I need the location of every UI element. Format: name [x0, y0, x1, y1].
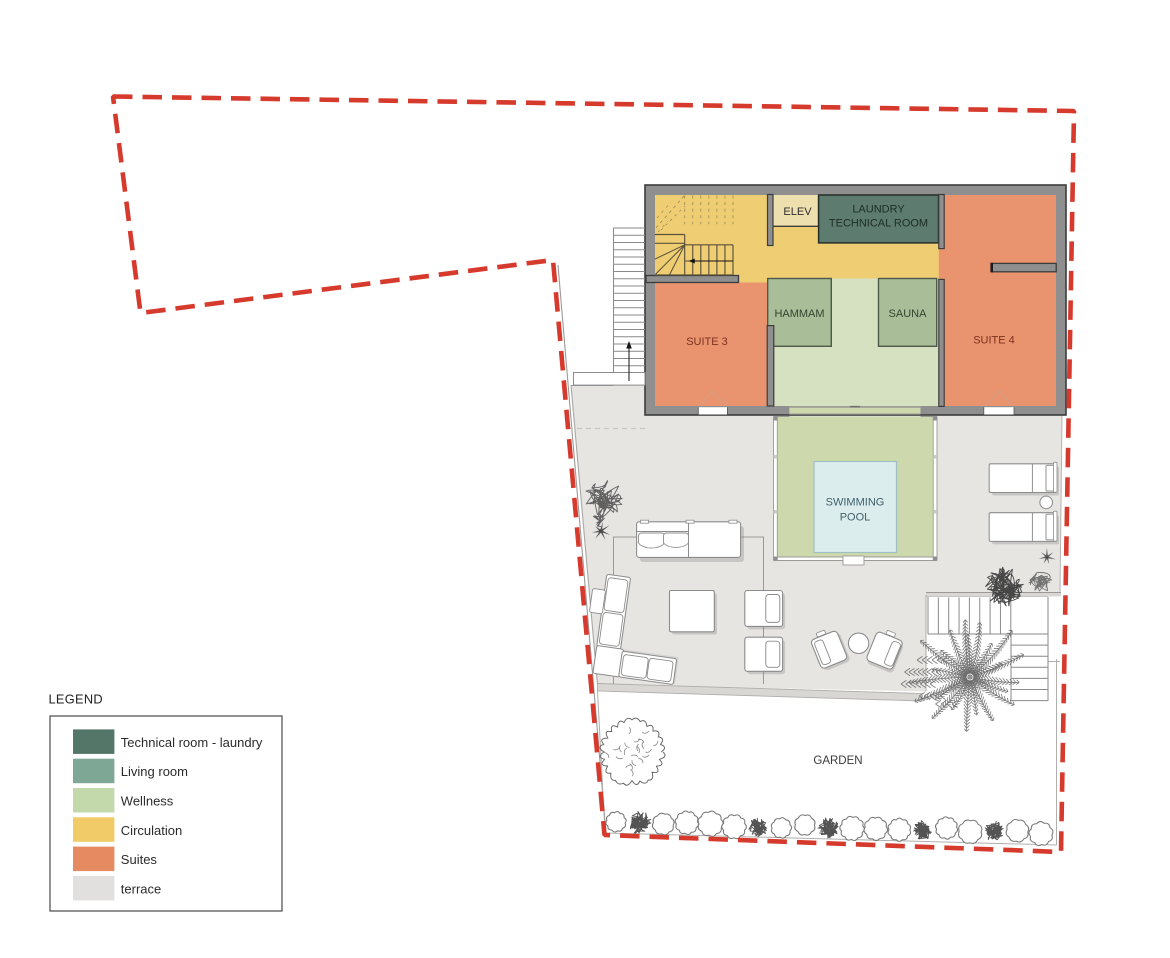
- svg-text:Suites: Suites: [121, 852, 158, 867]
- svg-text:ELEV: ELEV: [783, 206, 812, 218]
- svg-text:Technical room - laundry: Technical room - laundry: [121, 735, 263, 750]
- svg-text:TECHNICAL ROOM: TECHNICAL ROOM: [829, 218, 928, 230]
- svg-text:Living room: Living room: [121, 764, 188, 779]
- svg-text:LEGEND: LEGEND: [49, 692, 103, 707]
- svg-text:SWIMMING: SWIMMING: [826, 497, 885, 509]
- svg-text:SAUNA: SAUNA: [889, 308, 928, 320]
- svg-text:Circulation: Circulation: [121, 823, 182, 838]
- svg-text:Wellness: Wellness: [121, 794, 174, 809]
- svg-text:POOL: POOL: [840, 512, 871, 524]
- svg-text:LAUNDRY: LAUNDRY: [852, 204, 905, 216]
- svg-text:HAMMAM: HAMMAM: [774, 308, 824, 320]
- svg-text:terrace: terrace: [121, 881, 161, 896]
- svg-text:GARDEN: GARDEN: [813, 755, 862, 767]
- svg-text:SUITE 4: SUITE 4: [973, 335, 1015, 347]
- svg-text:SUITE 3: SUITE 3: [686, 336, 728, 348]
